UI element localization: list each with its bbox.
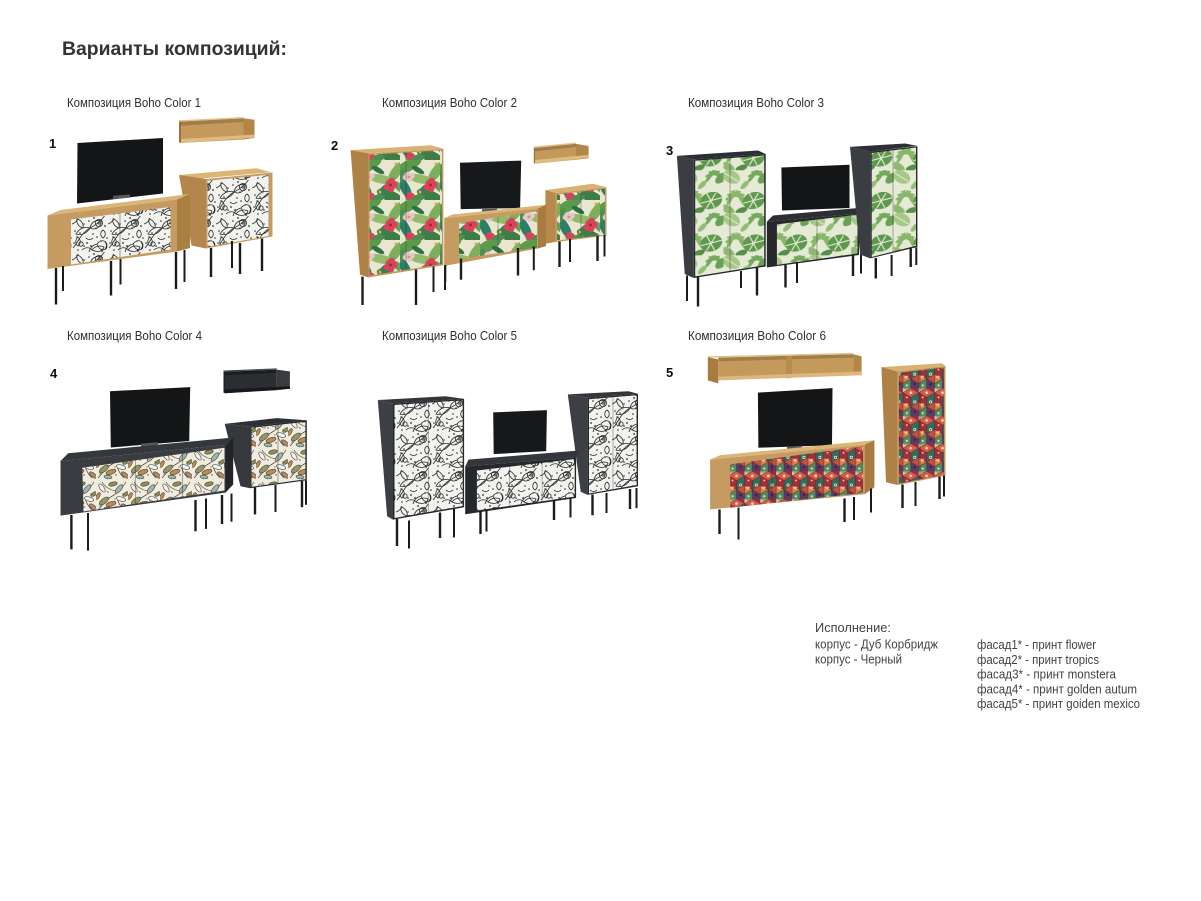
svg-text:5: 5	[666, 365, 673, 380]
svg-text:2: 2	[331, 138, 338, 153]
svg-text:3: 3	[666, 143, 673, 158]
svg-text:Композиция Boho Color 4: Композиция Boho Color 4	[67, 329, 202, 343]
svg-text:Композиция Boho Color 5: Композиция Boho Color 5	[382, 329, 517, 343]
svg-text:Композиция Boho Color 1: Композиция Boho Color 1	[67, 96, 201, 110]
svg-text:Композиция Boho Color 2: Композиция Boho Color 2	[382, 96, 517, 110]
svg-text:фасад4* - принт golden autum: фасад4* - принт golden autum	[977, 681, 1137, 696]
svg-text:фасад3* - принт monstera: фасад3* - принт monstera	[977, 667, 1117, 682]
svg-text:Исполнение:: Исполнение:	[815, 620, 891, 635]
svg-text:фасад5* - принт goiden mexico: фасад5* - принт goiden mexico	[977, 696, 1140, 711]
svg-text:1: 1	[49, 136, 56, 151]
svg-text:Композиция Boho Color 3: Композиция Boho Color 3	[688, 96, 824, 110]
svg-text:фасад2* - принт tropics: фасад2* - принт tropics	[977, 652, 1099, 667]
svg-text:4: 4	[50, 366, 58, 381]
svg-text:корпус - Черный: корпус - Черный	[815, 652, 902, 667]
svg-text:Композиция Boho Color 6: Композиция Boho Color 6	[688, 329, 826, 343]
svg-text:Варианты композиций:: Варианты композиций:	[62, 38, 287, 60]
svg-text:корпус - Дуб Корбридж: корпус - Дуб Корбридж	[815, 637, 938, 652]
svg-text:фасад1* - принт flower: фасад1* - принт flower	[977, 637, 1097, 652]
